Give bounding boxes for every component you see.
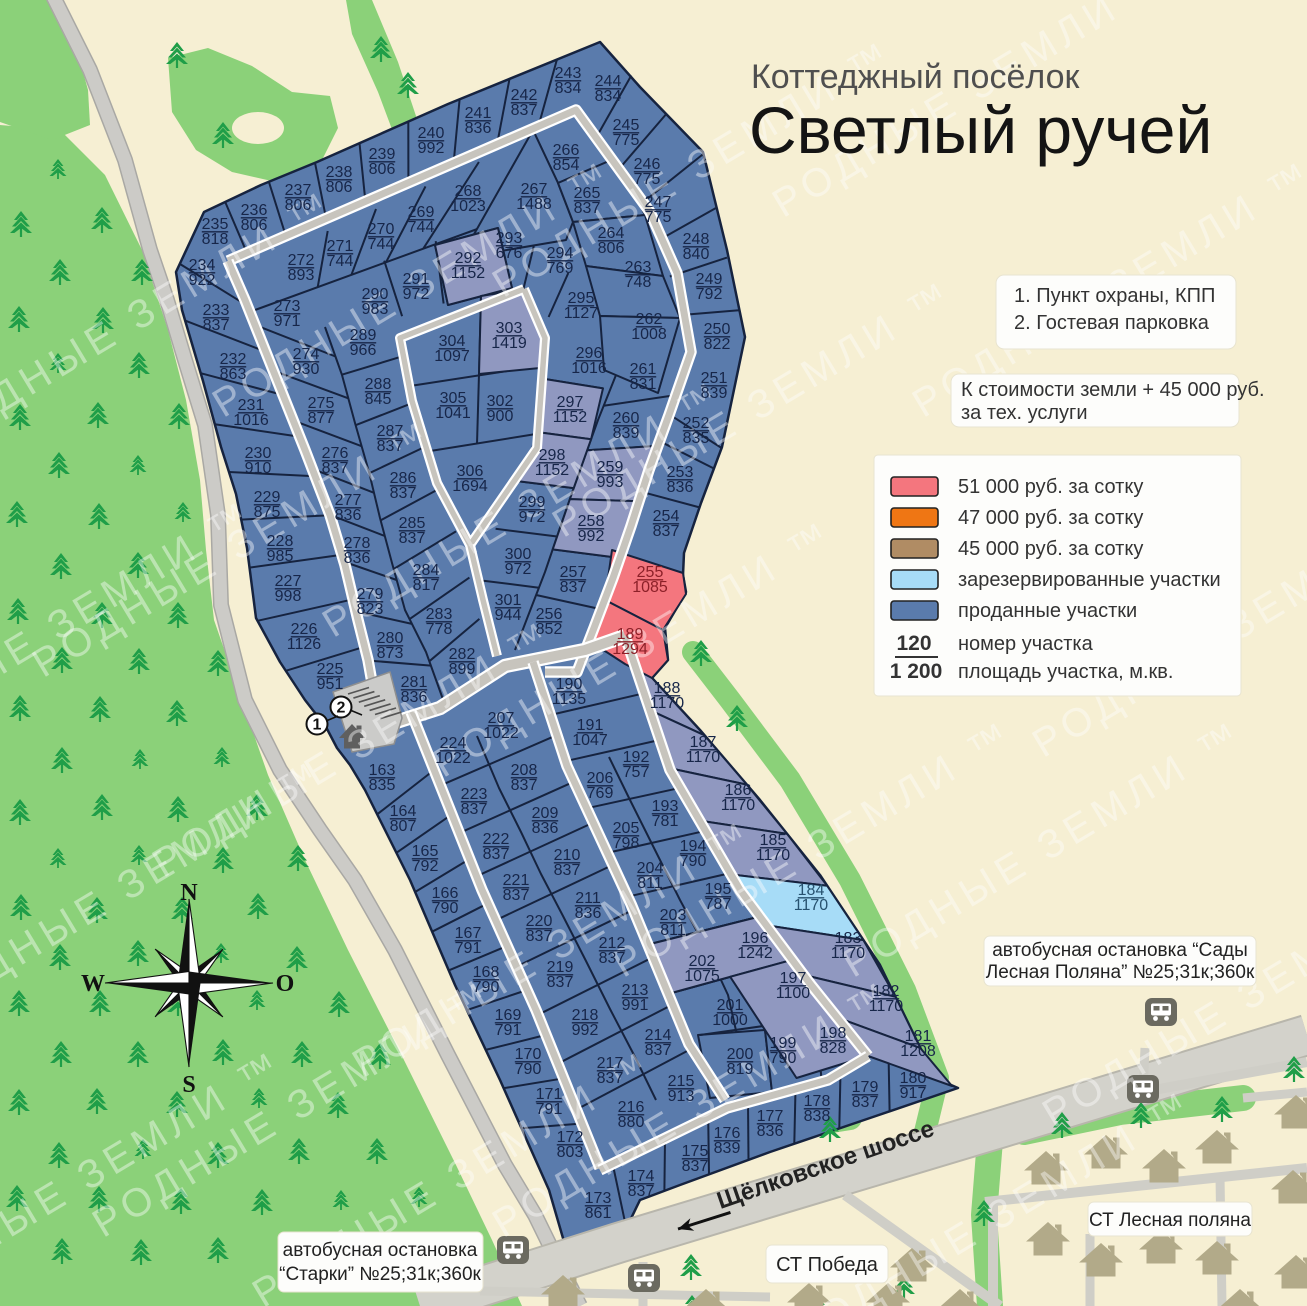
svg-text:837: 837: [377, 438, 404, 455]
svg-text:837: 837: [554, 862, 581, 879]
svg-text:769: 769: [547, 260, 574, 277]
svg-text:836: 836: [335, 507, 362, 524]
svg-text:837: 837: [682, 1158, 709, 1175]
svg-text:1 200: 1 200: [890, 660, 943, 683]
svg-text:1100: 1100: [776, 985, 811, 1002]
svg-text:839: 839: [613, 425, 640, 442]
svg-text:944: 944: [495, 607, 522, 624]
svg-text:778: 778: [426, 621, 453, 638]
svg-text:1047: 1047: [572, 732, 608, 749]
svg-text:806: 806: [285, 197, 312, 214]
svg-text:951: 951: [317, 676, 344, 693]
svg-text:Коттеджный посёлок: Коттеджный посёлок: [751, 58, 1080, 96]
svg-text:836: 836: [757, 1123, 784, 1140]
svg-text:837: 837: [560, 579, 587, 596]
svg-text:877: 877: [308, 410, 335, 427]
svg-text:744: 744: [327, 253, 354, 270]
svg-text:1085: 1085: [632, 579, 668, 596]
svg-text:1170: 1170: [721, 797, 756, 814]
svg-text:836: 836: [667, 479, 694, 496]
svg-text:1170: 1170: [869, 998, 904, 1015]
svg-text:автобусная остановка “Сады: автобусная остановка “Сады: [992, 940, 1248, 961]
svg-text:837: 837: [322, 460, 349, 477]
svg-text:992: 992: [578, 528, 605, 545]
svg-text:1. Пункт охраны, КПП: 1. Пункт охраны, КПП: [1014, 285, 1215, 307]
svg-text:837: 837: [628, 1183, 655, 1200]
svg-text:922: 922: [189, 272, 216, 289]
svg-text:1135: 1135: [552, 691, 587, 708]
svg-text:1242: 1242: [737, 945, 773, 962]
svg-text:1170: 1170: [650, 695, 685, 712]
svg-text:1126: 1126: [287, 636, 322, 653]
svg-text:837: 837: [599, 950, 626, 967]
svg-text:966: 966: [350, 342, 377, 359]
svg-text:837: 837: [597, 1070, 624, 1087]
svg-text:828: 828: [820, 1040, 847, 1057]
svg-text:1008: 1008: [631, 326, 667, 343]
svg-text:992: 992: [418, 140, 445, 157]
svg-text:792: 792: [696, 286, 723, 303]
svg-text:863: 863: [220, 366, 247, 383]
svg-text:744: 744: [408, 219, 435, 236]
svg-text:854: 854: [553, 157, 580, 174]
svg-text:1152: 1152: [553, 409, 588, 426]
svg-text:791: 791: [536, 1101, 563, 1118]
svg-text:775: 775: [634, 171, 661, 188]
svg-text:910: 910: [245, 460, 272, 477]
svg-text:775: 775: [645, 209, 672, 226]
svg-text:757: 757: [623, 764, 650, 781]
svg-text:792: 792: [412, 858, 439, 875]
svg-text:Светлый ручей: Светлый ручей: [749, 93, 1212, 167]
svg-text:836: 836: [532, 820, 559, 837]
svg-text:1208: 1208: [900, 1043, 936, 1060]
svg-text:837: 837: [526, 928, 553, 945]
svg-text:791: 791: [455, 940, 482, 957]
svg-text:120: 120: [896, 632, 931, 655]
svg-text:проданные участки: проданные участки: [958, 600, 1137, 622]
svg-text:972: 972: [505, 561, 532, 578]
svg-text:787: 787: [705, 896, 732, 913]
svg-text:W: W: [81, 971, 105, 997]
svg-text:972: 972: [403, 286, 430, 303]
svg-text:791: 791: [495, 1022, 522, 1039]
svg-text:837: 837: [547, 974, 574, 991]
svg-text:“Старки” №25;31к;360к: “Старки” №25;31к;360к: [279, 1264, 481, 1285]
svg-text:992: 992: [572, 1022, 599, 1039]
svg-text:840: 840: [683, 246, 710, 263]
svg-text:817: 817: [413, 577, 440, 594]
svg-text:1075: 1075: [684, 968, 720, 985]
svg-text:1016: 1016: [571, 360, 607, 377]
svg-text:806: 806: [241, 217, 268, 234]
svg-text:837: 837: [483, 846, 510, 863]
svg-text:769: 769: [587, 785, 614, 802]
svg-text:811: 811: [660, 922, 686, 939]
svg-text:806: 806: [369, 161, 396, 178]
svg-text:900: 900: [487, 408, 514, 425]
svg-text:1127: 1127: [564, 305, 599, 322]
svg-text:985: 985: [267, 548, 294, 565]
svg-text:2: 2: [337, 700, 346, 717]
svg-text:835: 835: [369, 777, 396, 794]
svg-text:993: 993: [597, 474, 624, 491]
svg-text:автобусная остановка: автобусная остановка: [283, 1240, 478, 1261]
svg-text:837: 837: [653, 523, 680, 540]
svg-text:834: 834: [555, 80, 582, 97]
svg-text:837: 837: [390, 485, 417, 502]
svg-text:790: 790: [473, 979, 500, 996]
svg-text:1152: 1152: [535, 462, 570, 479]
svg-text:площадь участка, м.кв.: площадь участка, м.кв.: [958, 661, 1173, 683]
svg-text:837: 837: [852, 1094, 879, 1111]
svg-text:за тех. услуги: за тех. услуги: [961, 402, 1088, 424]
svg-text:790: 790: [432, 900, 459, 917]
svg-text:837: 837: [574, 200, 601, 217]
svg-text:837: 837: [461, 801, 488, 818]
svg-text:СТ Лесная поляна: СТ Лесная поляна: [1089, 1210, 1251, 1231]
svg-text:зарезервированные участки: зарезервированные участки: [958, 569, 1221, 591]
svg-text:1294: 1294: [612, 641, 648, 658]
svg-text:К стоимости земли + 45 000 руб: К стоимости земли + 45 000 руб.: [961, 379, 1265, 401]
svg-text:819: 819: [727, 1061, 754, 1078]
svg-text:818: 818: [202, 231, 229, 248]
svg-text:O: O: [276, 971, 295, 997]
svg-text:45 000 руб. за сотку: 45 000 руб. за сотку: [958, 538, 1143, 560]
svg-text:836: 836: [401, 689, 428, 706]
svg-text:1000: 1000: [712, 1012, 748, 1029]
svg-text:852: 852: [536, 621, 563, 638]
svg-text:839: 839: [714, 1140, 741, 1157]
svg-text:Лесная Поляна” №25;31к;360к: Лесная Поляна” №25;31к;360к: [986, 962, 1255, 983]
svg-text:744: 744: [368, 236, 395, 253]
svg-text:798: 798: [613, 835, 640, 852]
svg-text:781: 781: [652, 813, 679, 830]
svg-text:1016: 1016: [233, 412, 269, 429]
svg-text:1170: 1170: [794, 897, 829, 914]
svg-text:2. Гостевая парковка: 2. Гостевая парковка: [1014, 312, 1210, 334]
svg-text:837: 837: [645, 1042, 672, 1059]
svg-text:1041: 1041: [435, 405, 471, 422]
svg-text:837: 837: [203, 317, 230, 334]
svg-text:1170: 1170: [756, 847, 791, 864]
svg-text:СТ Победа: СТ Победа: [776, 1254, 879, 1276]
svg-text:899: 899: [449, 661, 476, 678]
svg-text:47 000 руб. за сотку: 47 000 руб. за сотку: [958, 507, 1143, 529]
svg-text:835: 835: [683, 430, 710, 447]
svg-text:991: 991: [622, 997, 649, 1014]
svg-text:917: 917: [900, 1085, 927, 1102]
svg-text:806: 806: [326, 179, 353, 196]
svg-text:913: 913: [668, 1088, 695, 1105]
svg-text:775: 775: [613, 132, 640, 149]
svg-text:803: 803: [557, 1144, 584, 1161]
svg-text:836: 836: [344, 550, 371, 567]
svg-text:1170: 1170: [686, 749, 721, 766]
svg-text:839: 839: [701, 385, 728, 402]
svg-text:930: 930: [293, 361, 320, 378]
svg-text:1022: 1022: [435, 750, 471, 767]
svg-text:861: 861: [585, 1205, 612, 1222]
svg-text:831: 831: [630, 376, 657, 393]
svg-text:837: 837: [399, 530, 426, 547]
svg-text:1419: 1419: [491, 335, 527, 352]
svg-text:873: 873: [377, 645, 404, 662]
svg-text:837: 837: [503, 887, 530, 904]
svg-text:676: 676: [496, 245, 523, 262]
svg-text:748: 748: [625, 274, 652, 291]
svg-text:51 000 руб. за сотку: 51 000 руб. за сотку: [958, 476, 1143, 498]
svg-text:807: 807: [390, 818, 417, 835]
svg-text:806: 806: [598, 240, 625, 257]
svg-text:790: 790: [770, 1050, 797, 1067]
svg-text:822: 822: [704, 336, 731, 353]
svg-text:790: 790: [680, 853, 707, 870]
svg-text:1152: 1152: [451, 265, 486, 282]
svg-text:983: 983: [362, 301, 389, 318]
svg-text:1022: 1022: [483, 725, 519, 742]
svg-text:998: 998: [275, 588, 302, 605]
svg-text:875: 875: [254, 504, 281, 521]
svg-text:номер участка: номер участка: [958, 633, 1094, 655]
svg-text:836: 836: [575, 905, 602, 922]
svg-text:1694: 1694: [452, 478, 488, 495]
svg-text:1097: 1097: [434, 348, 470, 365]
svg-text:1: 1: [313, 717, 322, 734]
svg-text:1023: 1023: [450, 198, 486, 215]
svg-text:834: 834: [595, 88, 622, 105]
svg-text:790: 790: [515, 1061, 542, 1078]
svg-text:845: 845: [365, 391, 392, 408]
svg-text:836: 836: [465, 120, 492, 137]
svg-text:837: 837: [511, 102, 538, 119]
svg-text:893: 893: [288, 267, 315, 284]
svg-text:838: 838: [804, 1108, 831, 1125]
svg-text:880: 880: [618, 1114, 645, 1131]
svg-text:972: 972: [519, 509, 546, 526]
svg-text:971: 971: [274, 313, 301, 330]
svg-text:N: N: [180, 880, 198, 906]
svg-text:1170: 1170: [831, 945, 866, 962]
svg-text:837: 837: [511, 777, 538, 794]
svg-text:823: 823: [357, 601, 384, 618]
svg-text:1488: 1488: [516, 196, 552, 213]
svg-text:811: 811: [637, 875, 663, 892]
